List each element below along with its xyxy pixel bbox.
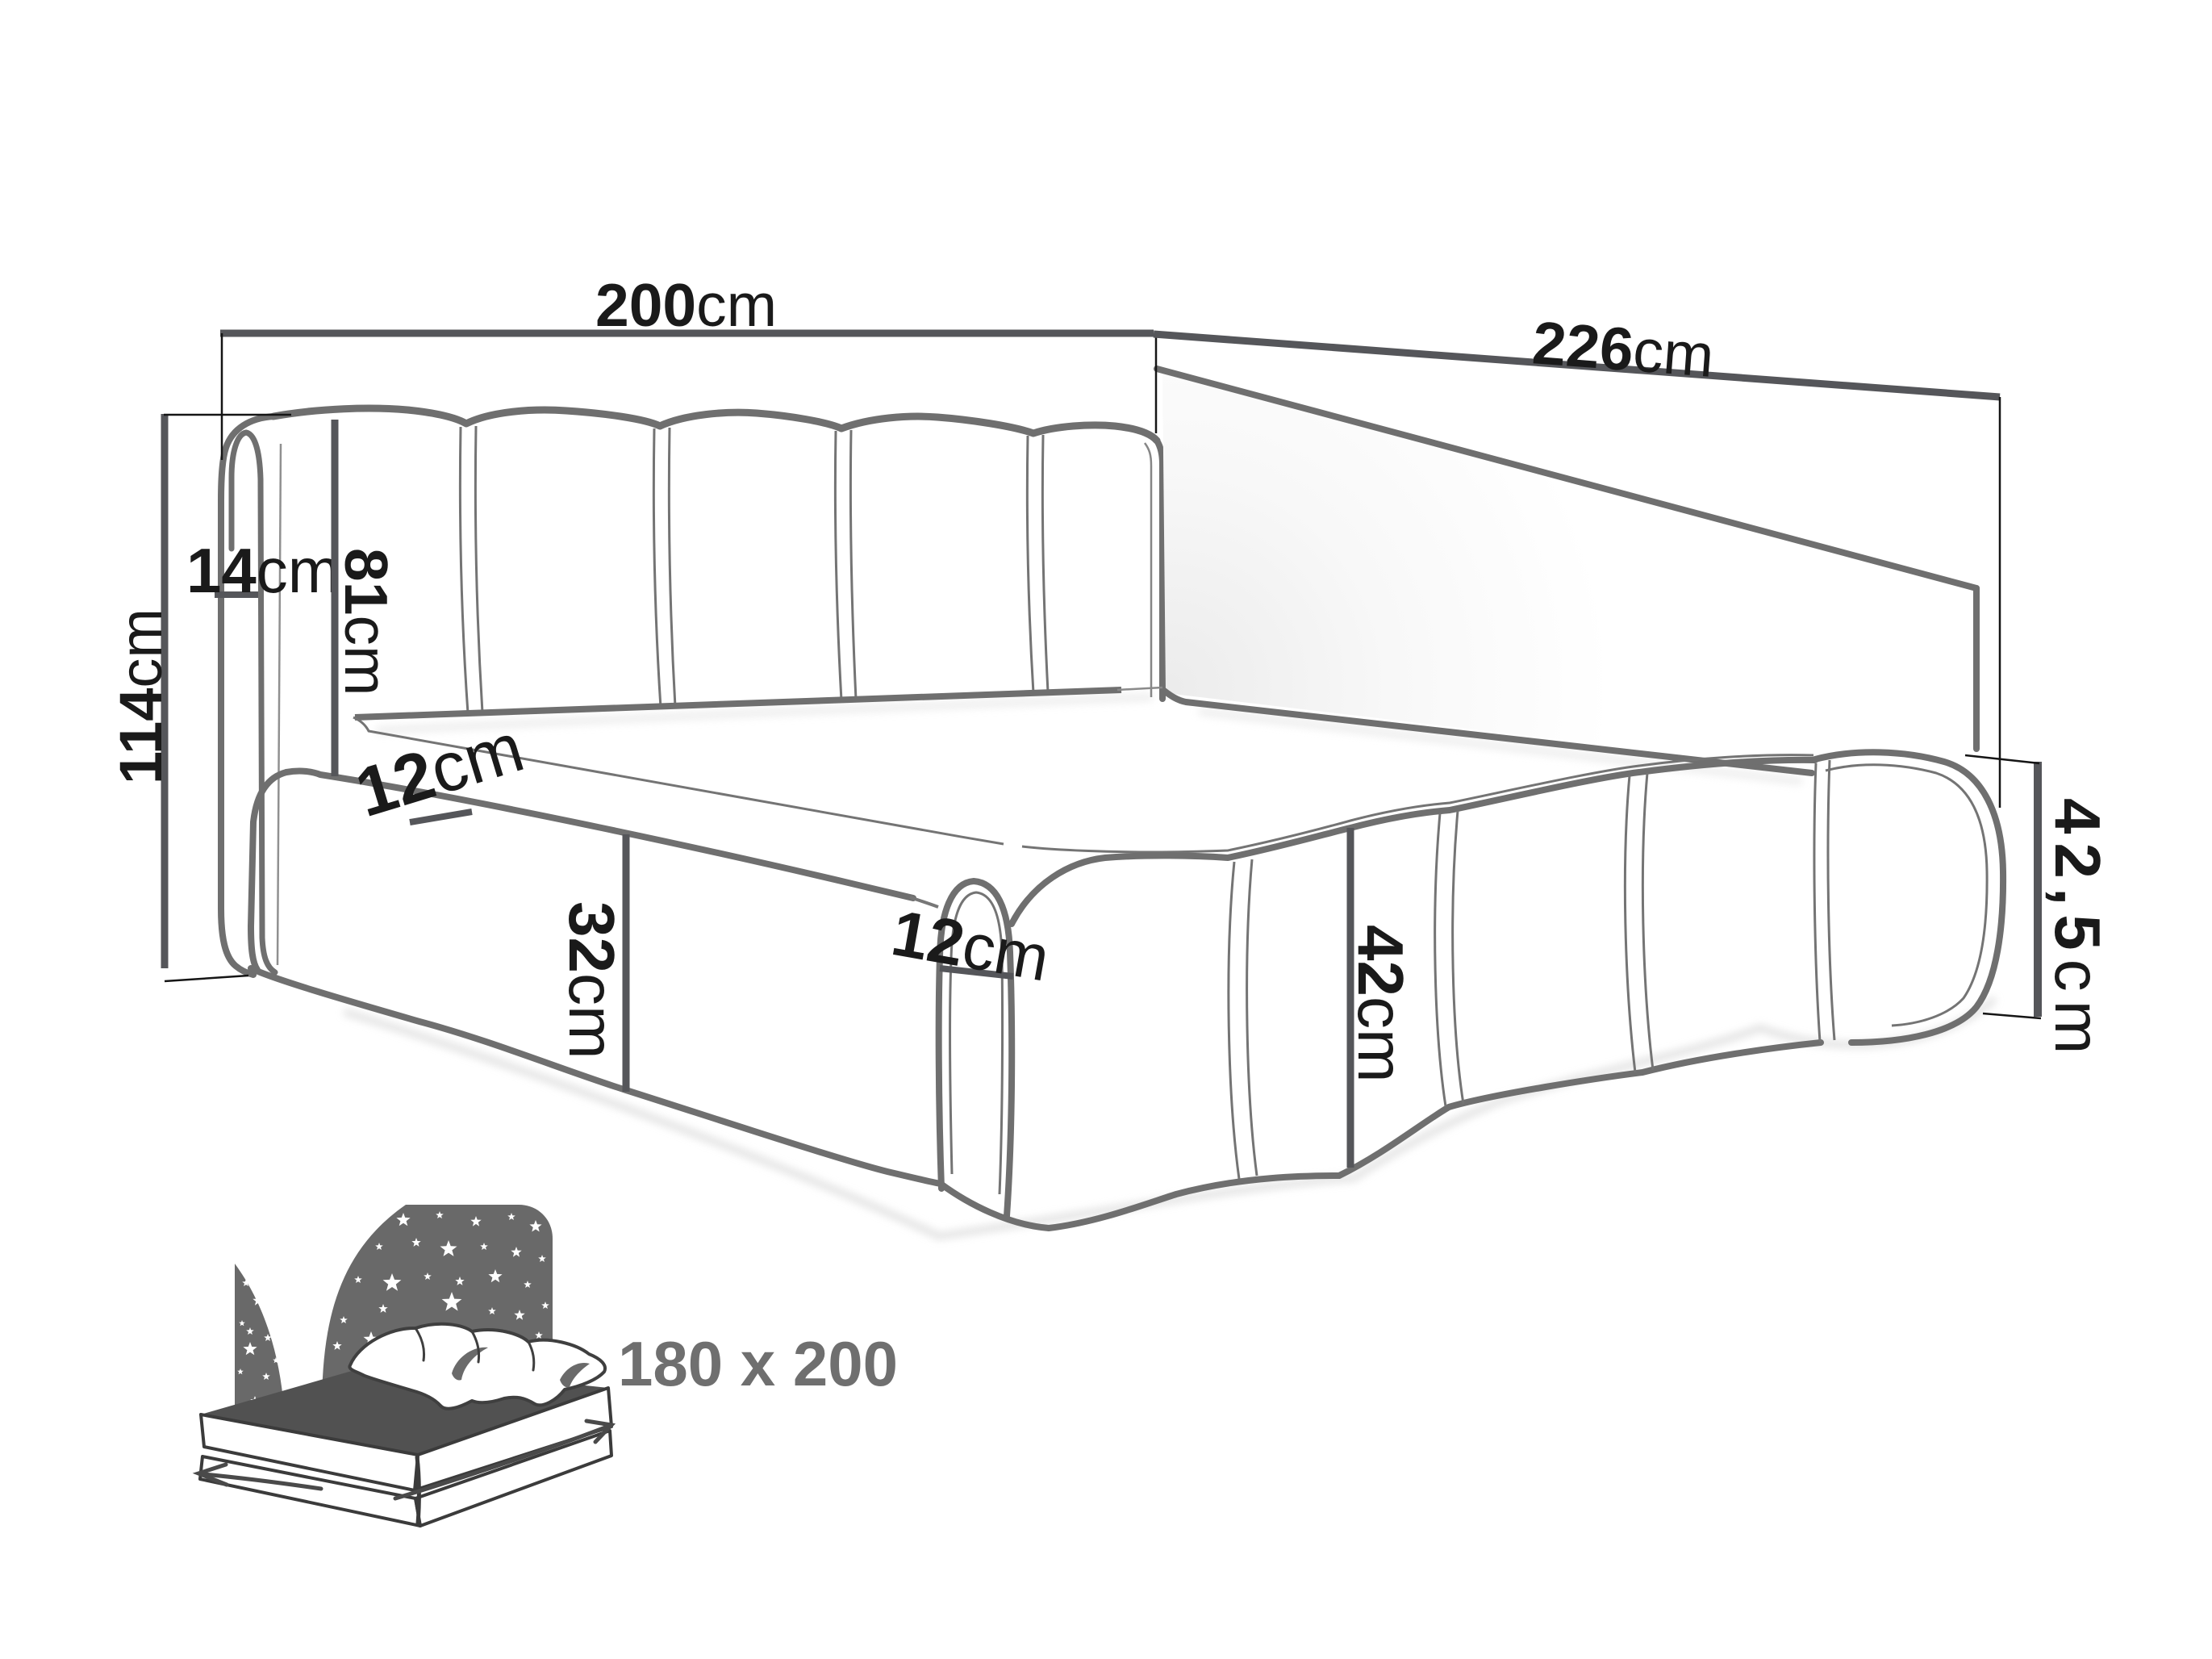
svg-text:42,5cm: 42,5cm bbox=[2042, 798, 2114, 1063]
svg-text:32cm: 32cm bbox=[556, 901, 628, 1059]
svg-text:200cm: 200cm bbox=[595, 271, 777, 339]
svg-text:226cm: 226cm bbox=[1530, 308, 1717, 390]
svg-text:81cm: 81cm bbox=[332, 548, 400, 696]
svg-text:42cm: 42cm bbox=[1345, 925, 1417, 1083]
svg-text:180 x 200: 180 x 200 bbox=[618, 1328, 898, 1399]
svg-text:114cm: 114cm bbox=[107, 608, 174, 784]
svg-text:14cm: 14cm bbox=[186, 535, 340, 606]
